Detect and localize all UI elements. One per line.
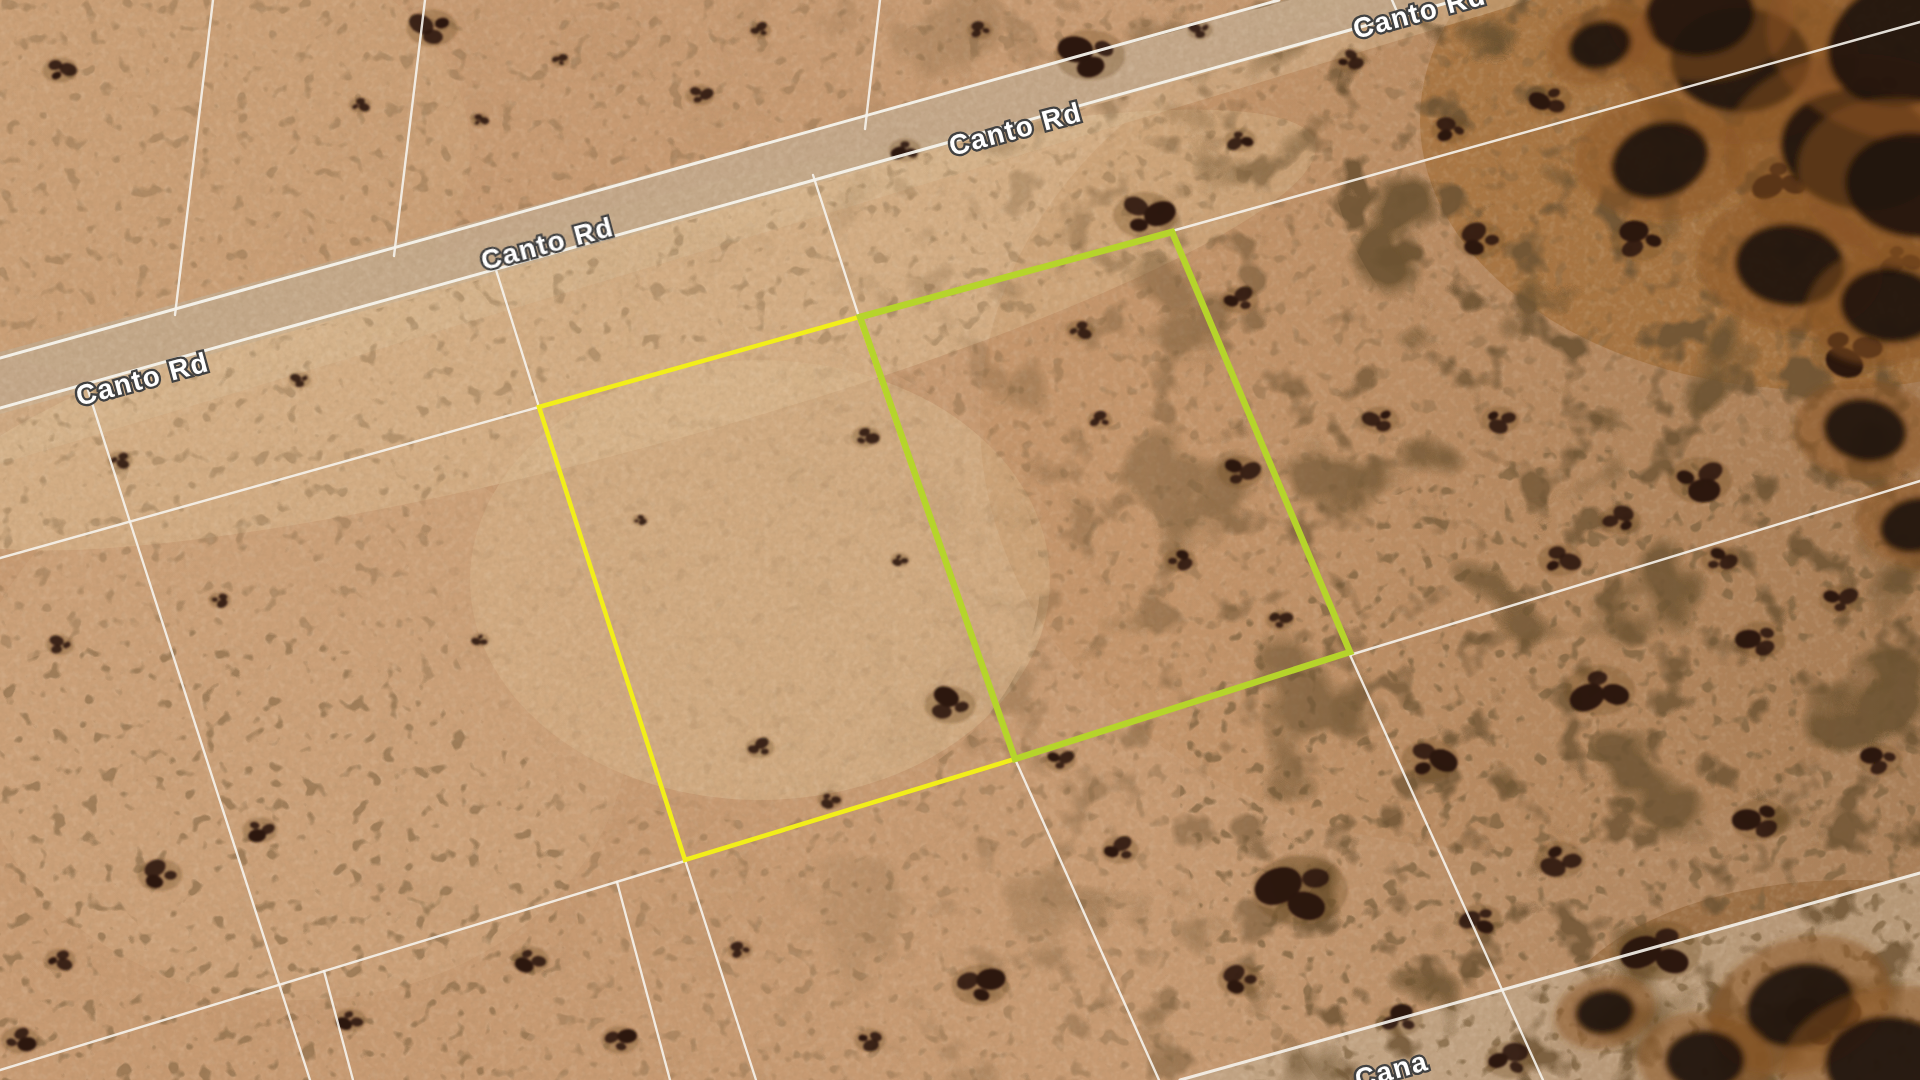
bush-cluster xyxy=(601,1026,639,1054)
satellite-map[interactable]: Canto RdCanto RdCanto RdCanto RdCana xyxy=(0,0,1920,1080)
map-canvas: Canto RdCanto RdCanto RdCanto RdCana xyxy=(0,0,1920,1080)
bush-cluster xyxy=(852,427,881,448)
bush-cluster xyxy=(470,633,489,647)
bush-cluster xyxy=(1431,116,1469,144)
bush-cluster xyxy=(550,53,569,67)
bush-cluster xyxy=(1819,585,1861,615)
bush-cluster xyxy=(289,372,311,388)
burnt-patch xyxy=(1575,100,1745,220)
bush-cluster xyxy=(951,964,1009,1005)
bush-cluster xyxy=(1266,610,1295,631)
bush-cluster xyxy=(349,97,371,113)
